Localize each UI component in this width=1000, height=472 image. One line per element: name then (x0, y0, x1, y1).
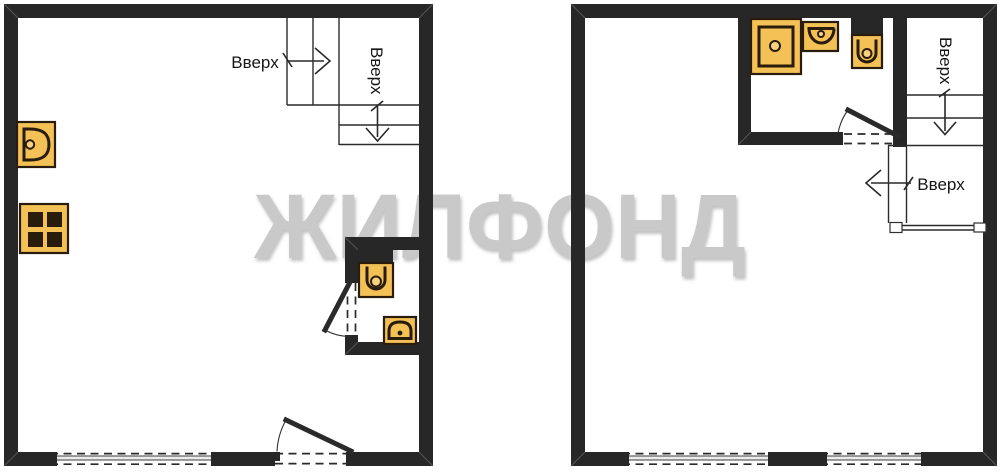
wall-segment (4, 4, 18, 466)
wall-segment (983, 4, 997, 466)
stair-direction-arrow-right (283, 48, 330, 74)
level1-staircase: Вверх Вверх (231, 18, 419, 145)
floor-plan-image: ЖИЛФОНД Вверх (0, 0, 1000, 472)
window-glass (629, 456, 768, 460)
door-jamb (274, 452, 280, 461)
washbasin-icon (803, 22, 838, 51)
toilet-icon (357, 250, 393, 297)
stair-up-label: Вверх (917, 175, 965, 194)
floor-plan-page: ЖИЛФОНД Вверх (0, 0, 1000, 472)
kitchen-sink-icon (17, 122, 55, 167)
stair-up-label: Вверх (231, 53, 279, 72)
stair-direction-arrow-down (934, 89, 956, 135)
level2-window-1 (622, 452, 775, 466)
window-cap (211, 452, 218, 466)
window-cap (921, 452, 928, 466)
wall-segment (419, 4, 433, 466)
window-glass (827, 456, 921, 460)
level2-window-2 (820, 452, 928, 466)
wall-segment (738, 18, 751, 145)
stair-up-label-vertical: Вверх (367, 47, 386, 95)
window-cap (622, 452, 629, 466)
stair-landing-rail (890, 223, 986, 233)
door-swing-arc (838, 110, 848, 134)
watermark-text: ЖИЛФОНД (253, 176, 746, 278)
wall-segment (775, 452, 820, 466)
stair-tread-line (287, 18, 419, 145)
stove-icon (20, 204, 68, 253)
wall-segment (571, 4, 585, 466)
wall-segment (838, 132, 843, 145)
wall-segment (571, 4, 997, 18)
toilet-icon (851, 18, 883, 68)
level2-staircase: Вверх Вверх (866, 37, 986, 233)
door-opening-dash (275, 454, 352, 464)
door-swing-arc (277, 420, 286, 452)
wall-segment (738, 132, 838, 145)
window-cap (50, 452, 57, 466)
window-cap (768, 452, 775, 466)
window-cap (820, 452, 827, 466)
wall-segment (4, 4, 433, 18)
stair-up-label-vertical: Вверх (936, 37, 955, 85)
door-leaf (286, 420, 351, 451)
wall-segment (928, 452, 997, 466)
door-leaf (325, 284, 349, 330)
window-glass (57, 456, 211, 460)
washbasin-icon (384, 317, 416, 344)
level2-bathroom (738, 18, 907, 147)
wall-segment (893, 18, 907, 147)
wall-segment (218, 452, 275, 466)
stair-direction-arrow-down (366, 101, 389, 141)
level1-window (50, 452, 218, 466)
door-leaf (848, 110, 898, 136)
door-opening-dash (348, 283, 356, 335)
door-opening-dash (844, 134, 892, 144)
shower-icon (751, 19, 801, 74)
level1-entry-door (274, 420, 353, 466)
